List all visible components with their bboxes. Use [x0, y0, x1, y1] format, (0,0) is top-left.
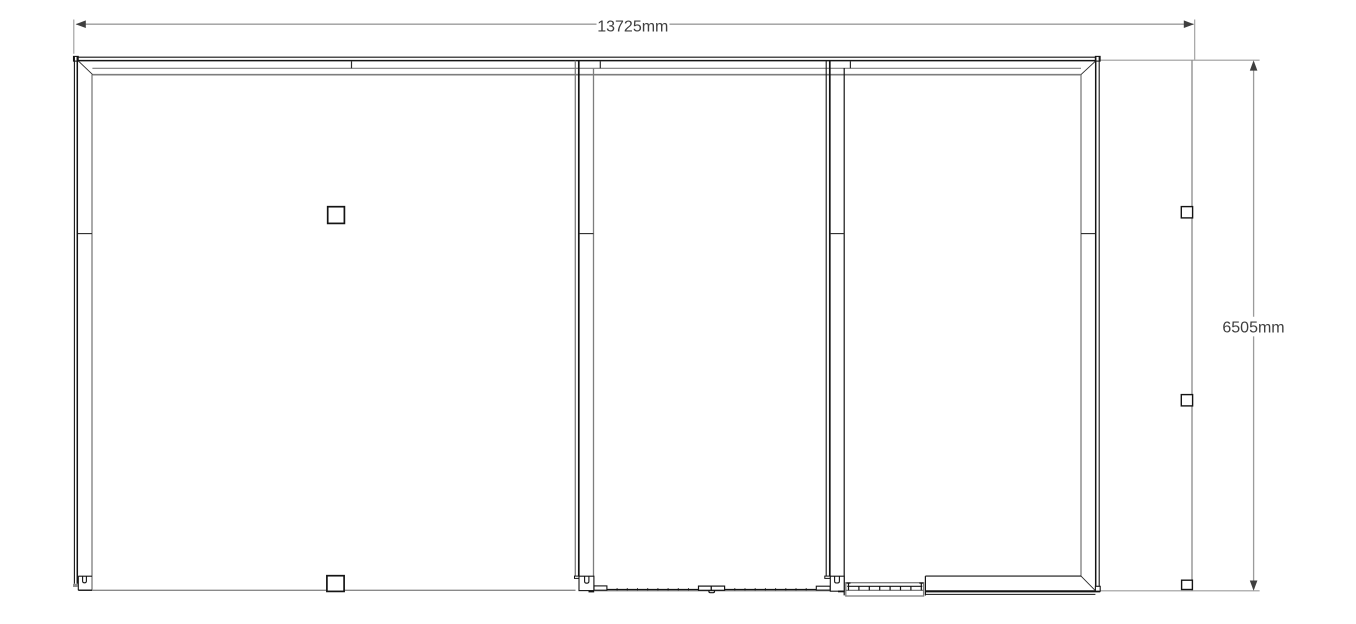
svg-text:13725mm: 13725mm	[597, 19, 668, 36]
svg-text:6505mm: 6505mm	[1222, 320, 1284, 337]
